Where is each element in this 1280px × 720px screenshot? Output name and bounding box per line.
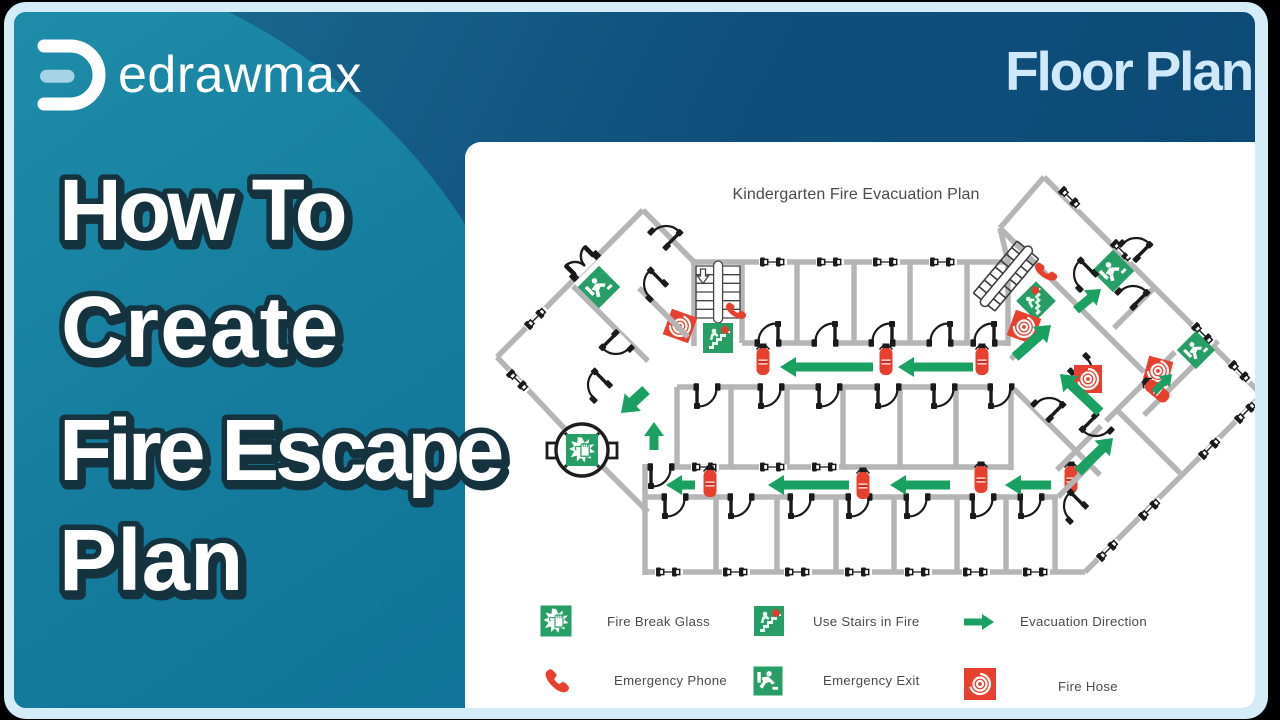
svg-text:Fire Escape: Fire Escape	[59, 402, 502, 499]
svg-text:Kindergarten Fire Evacuation P: Kindergarten Fire Evacuation Plan	[733, 186, 980, 203]
svg-text:Evacuation Direction: Evacuation Direction	[1020, 614, 1147, 629]
svg-text:Plan: Plan	[59, 512, 244, 609]
svg-text:How To: How To	[59, 162, 345, 259]
svg-text:Fire Hose: Fire Hose	[1058, 679, 1118, 694]
svg-text:Emergency Exit: Emergency Exit	[823, 673, 920, 688]
svg-text:Use Stairs in Fire: Use Stairs in Fire	[813, 614, 920, 629]
svg-text:Create: Create	[61, 279, 340, 376]
